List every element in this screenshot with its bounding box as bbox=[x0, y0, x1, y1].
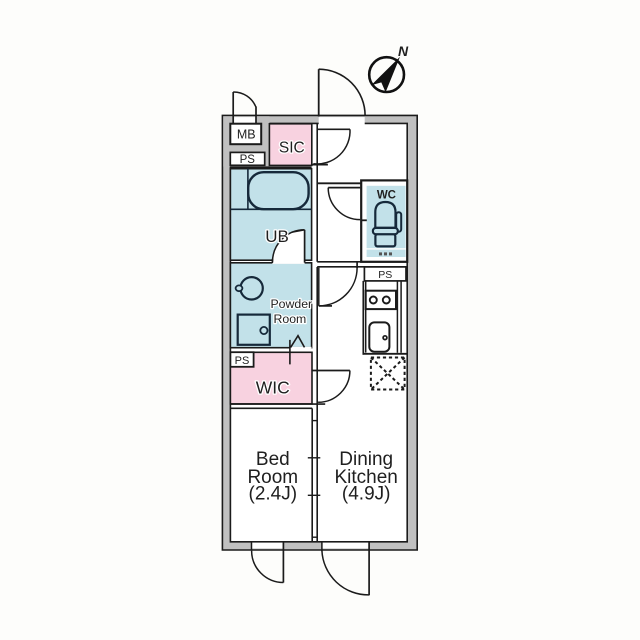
svg-text:PS: PS bbox=[378, 269, 392, 281]
svg-text:PS: PS bbox=[235, 355, 250, 367]
svg-text:Room: Room bbox=[273, 312, 306, 326]
svg-text:MB: MB bbox=[237, 128, 256, 142]
svg-text:SIC: SIC bbox=[279, 140, 305, 157]
svg-text:UB: UB bbox=[265, 227, 289, 246]
svg-text:N: N bbox=[398, 43, 409, 59]
svg-text:PS: PS bbox=[240, 154, 256, 166]
svg-text:(2.4J): (2.4J) bbox=[249, 484, 298, 505]
svg-text:Powder: Powder bbox=[270, 297, 312, 311]
svg-text:WIC: WIC bbox=[256, 377, 290, 397]
svg-text:(4.9J): (4.9J) bbox=[342, 484, 391, 505]
svg-text:WC: WC bbox=[377, 190, 396, 202]
